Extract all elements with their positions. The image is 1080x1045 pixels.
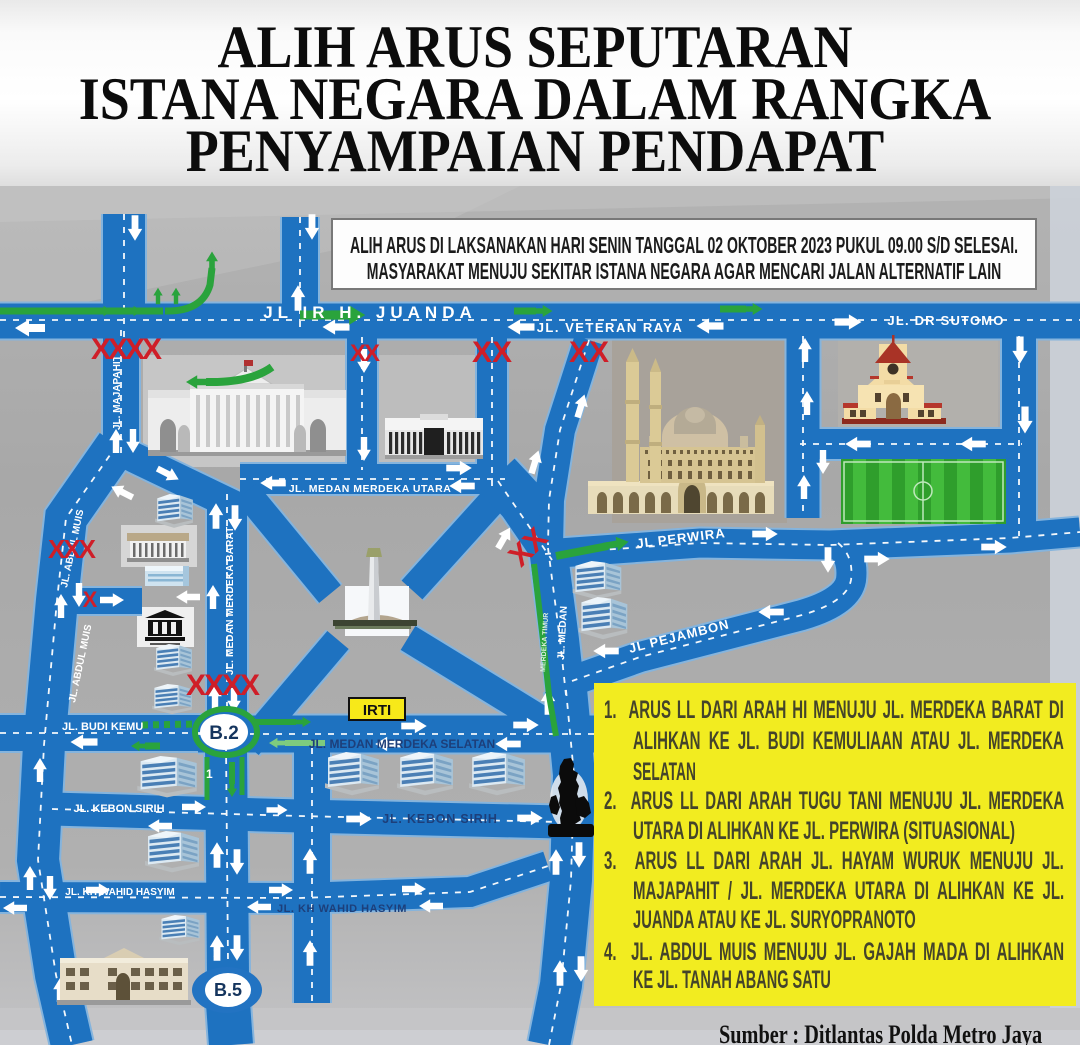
- svg-text:1: 1: [213, 946, 220, 960]
- svg-text:1: 1: [206, 767, 213, 781]
- svg-text:JL. BUDI KEMU: JL. BUDI KEMU: [62, 721, 143, 733]
- svg-text:JL. MEDAN MERDEKA SELATAN: JL. MEDAN MERDEKA SELATAN: [309, 737, 495, 751]
- svg-text:JL. KEBON SIRIH: JL. KEBON SIRIH: [382, 812, 498, 826]
- svg-text:XXXX: XXXX: [91, 333, 162, 366]
- svg-text:X: X: [83, 587, 98, 612]
- svg-text:XX: XX: [350, 340, 380, 367]
- svg-text:XX: XX: [472, 336, 512, 369]
- svg-text:JL. MEDAN MERDEKA UTARA: JL. MEDAN MERDEKA UTARA: [289, 483, 452, 495]
- svg-text:IRTI: IRTI: [363, 702, 391, 719]
- svg-text:XXXX: XXXX: [186, 669, 260, 702]
- svg-text:JL. KEBON SIRIH: JL. KEBON SIRIH: [73, 803, 164, 815]
- svg-text:JL. VETERAN RAYA: JL. VETERAN RAYA: [537, 320, 684, 335]
- svg-text:XX: XX: [569, 336, 609, 369]
- svg-text:XXX: XXX: [48, 534, 97, 564]
- svg-text:JL. MEDAN MERDEKA BARAT: JL. MEDAN MERDEKA BARAT: [225, 527, 236, 676]
- svg-text:JL. MAJAPAHIT: JL. MAJAPAHIT: [112, 355, 123, 430]
- svg-text:JL IR H. JUANDA: JL IR H. JUANDA: [263, 303, 477, 322]
- svg-text:B.5: B.5: [214, 980, 242, 1000]
- svg-text:JL. KH WAHID HASYIM: JL. KH WAHID HASYIM: [277, 903, 407, 915]
- svg-text:JL. DR SUTOMO: JL. DR SUTOMO: [887, 313, 1004, 328]
- svg-text:B.2: B.2: [209, 723, 239, 744]
- svg-text:JL. KH WAHID HASYIM: JL. KH WAHID HASYIM: [65, 887, 174, 898]
